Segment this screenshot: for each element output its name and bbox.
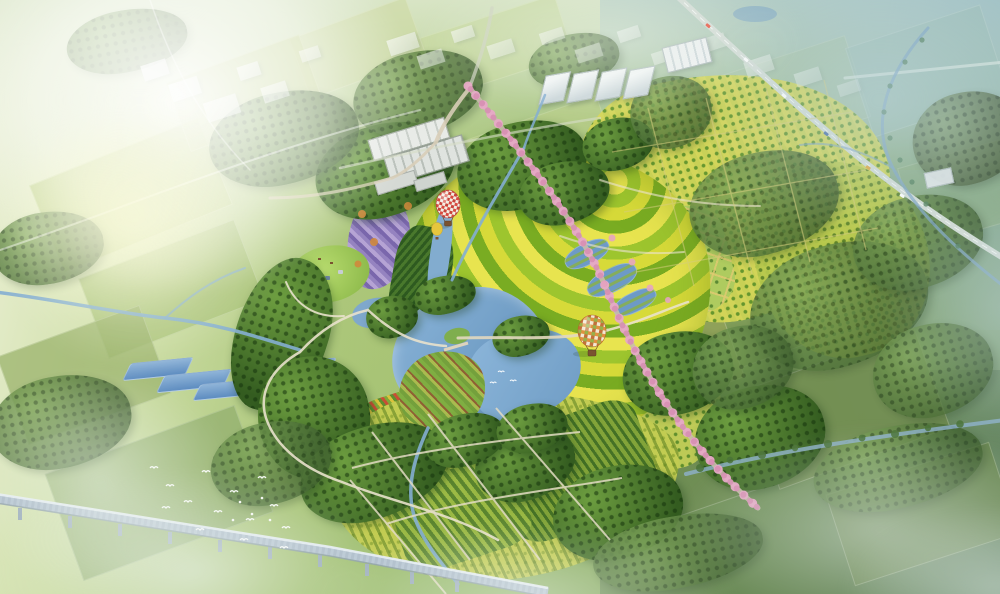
linework-overlay [0,0,1000,594]
accent-tree-dots [355,202,672,303]
orchard-block-lines [612,80,878,286]
cherry-blossom-avenue [468,86,758,508]
park-paths [264,8,760,540]
aerial-rendering [0,0,1000,594]
standing-egrets [232,497,272,522]
viaduct-piers [18,508,459,592]
highway-with-cars [676,0,1000,262]
lake-bridge [444,343,468,350]
railway-viaduct [0,493,548,594]
hot-air-balloon-yellow [432,223,443,240]
